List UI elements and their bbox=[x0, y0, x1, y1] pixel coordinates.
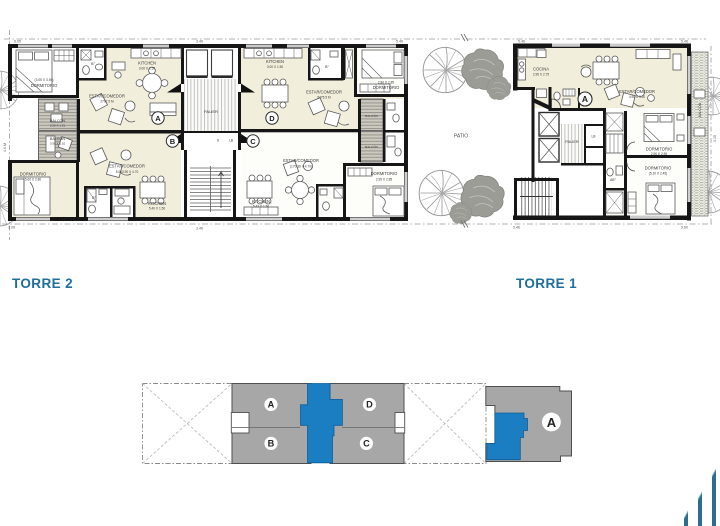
svg-text:KITCHEN: KITCHEN bbox=[252, 199, 270, 204]
svg-text:2.95 X 2.85: 2.95 X 2.85 bbox=[376, 178, 393, 182]
svg-text:BALCÓN: BALCÓN bbox=[365, 144, 378, 149]
svg-text:5.063.90 X 4.70: 5.063.90 X 4.70 bbox=[116, 170, 139, 174]
svg-text:DORMITORIO: DORMITORIO bbox=[646, 147, 673, 152]
svg-text:DORMITORIO: DORMITORIO bbox=[645, 166, 672, 171]
svg-text:A: A bbox=[155, 114, 161, 123]
svg-text:DORMITORIO: DORMITORIO bbox=[373, 85, 400, 90]
svg-text:TORRE 2: TORRE 2 bbox=[12, 276, 73, 291]
svg-text:2.80 X 2.85: 2.80 X 2.85 bbox=[378, 81, 395, 85]
svg-text:B°: B° bbox=[325, 65, 329, 69]
svg-text:BALCÓN: BALCÓN bbox=[50, 136, 66, 141]
svg-text:DORMITORIO: DORMITORIO bbox=[31, 83, 58, 88]
svg-text:D: D bbox=[269, 114, 275, 123]
svg-text:3.00 X 1.50: 3.00 X 1.50 bbox=[139, 67, 156, 71]
svg-text:BALCÓN: BALCÓN bbox=[697, 102, 702, 117]
svg-text:TORRE 1: TORRE 1 bbox=[516, 276, 577, 291]
svg-text:(3.05 X 3.94): (3.05 X 3.94) bbox=[34, 78, 53, 82]
svg-text:KITCHEN: KITCHEN bbox=[148, 201, 166, 206]
svg-text:PALIER: PALIER bbox=[204, 109, 218, 114]
svg-text:DORMITORIO: DORMITORIO bbox=[371, 171, 398, 176]
svg-text:5.46: 5.46 bbox=[396, 40, 403, 44]
svg-text:2.95 X 2.75: 2.95 X 2.75 bbox=[533, 73, 550, 77]
svg-text:3.00 X 1.50: 3.00 X 1.50 bbox=[267, 65, 284, 69]
svg-text:3.46: 3.46 bbox=[196, 40, 203, 44]
svg-text:BALCÓN: BALCÓN bbox=[50, 118, 66, 123]
svg-text:DORMITORIO: DORMITORIO bbox=[20, 172, 47, 177]
svg-text:ESTAR/COMEDOR: ESTAR/COMEDOR bbox=[283, 158, 319, 163]
svg-text:2.05 X 1.51: 2.05 X 1.51 bbox=[50, 124, 66, 128]
svg-text:LB: LB bbox=[229, 139, 234, 143]
svg-text:B°: B° bbox=[91, 62, 95, 66]
svg-text:3.46: 3.46 bbox=[196, 227, 203, 231]
svg-text:PATIO: PATIO bbox=[454, 134, 468, 140]
svg-text:5.46: 5.46 bbox=[681, 40, 688, 44]
svg-text:5.60 X 2.80: 5.60 X 2.80 bbox=[25, 178, 42, 182]
svg-text:B: B bbox=[268, 438, 275, 448]
svg-text:3.06: 3.06 bbox=[8, 226, 15, 230]
svg-text:4.95 X 3.20: 4.95 X 3.20 bbox=[629, 95, 646, 99]
svg-text:KITCHEN: KITCHEN bbox=[266, 59, 284, 64]
svg-text:B°: B° bbox=[92, 196, 96, 200]
svg-text:KITCHEN: KITCHEN bbox=[138, 61, 156, 66]
svg-text:2.90 X 2.90: 2.90 X 2.90 bbox=[651, 152, 668, 156]
svg-text:A: A bbox=[547, 415, 557, 430]
svg-text:(170.36 X 4.70): (170.36 X 4.70) bbox=[290, 165, 312, 169]
svg-text:5.43 X 1.50: 5.43 X 1.50 bbox=[253, 205, 270, 209]
svg-text:5.40 X 1.50: 5.40 X 1.50 bbox=[149, 207, 166, 211]
svg-text:ESTAR/COMEDOR: ESTAR/COMEDOR bbox=[306, 90, 342, 95]
svg-text:(5.10 X 2.45): (5.10 X 2.45) bbox=[649, 172, 667, 176]
svg-text:5.05: 5.05 bbox=[14, 40, 21, 44]
svg-text:ESTAR/COMEDOR: ESTAR/COMEDOR bbox=[619, 89, 655, 94]
svg-text:COCINA: COCINA bbox=[533, 67, 549, 72]
svg-text:PALIER: PALIER bbox=[565, 140, 578, 144]
svg-text:2707.5 M: 2707.5 M bbox=[100, 100, 114, 104]
svg-text:3.15: 3.15 bbox=[713, 135, 717, 142]
svg-text:5.46: 5.46 bbox=[513, 226, 520, 230]
svg-text:ESTAR/COMEDOR: ESTAR/COMEDOR bbox=[89, 94, 125, 99]
svg-text:ESTAR/COMEDOR: ESTAR/COMEDOR bbox=[109, 164, 145, 169]
svg-text:AB°: AB° bbox=[610, 178, 617, 182]
svg-text:4.6 M: 4.6 M bbox=[3, 143, 7, 152]
svg-text:C: C bbox=[250, 137, 256, 146]
svg-text:A: A bbox=[268, 400, 275, 410]
svg-text:5475.5 M: 5475.5 M bbox=[317, 96, 331, 100]
svg-text:D: D bbox=[366, 400, 373, 410]
svg-text:3.59 X 1.10: 3.59 X 1.10 bbox=[50, 142, 66, 146]
svg-text:5.60: 5.60 bbox=[681, 226, 688, 230]
svg-text:A: A bbox=[582, 94, 588, 104]
svg-text:BALCÓN: BALCÓN bbox=[365, 113, 378, 118]
svg-text:B: B bbox=[170, 137, 176, 146]
svg-text:5.46: 5.46 bbox=[518, 40, 525, 44]
svg-text:C: C bbox=[363, 438, 370, 448]
